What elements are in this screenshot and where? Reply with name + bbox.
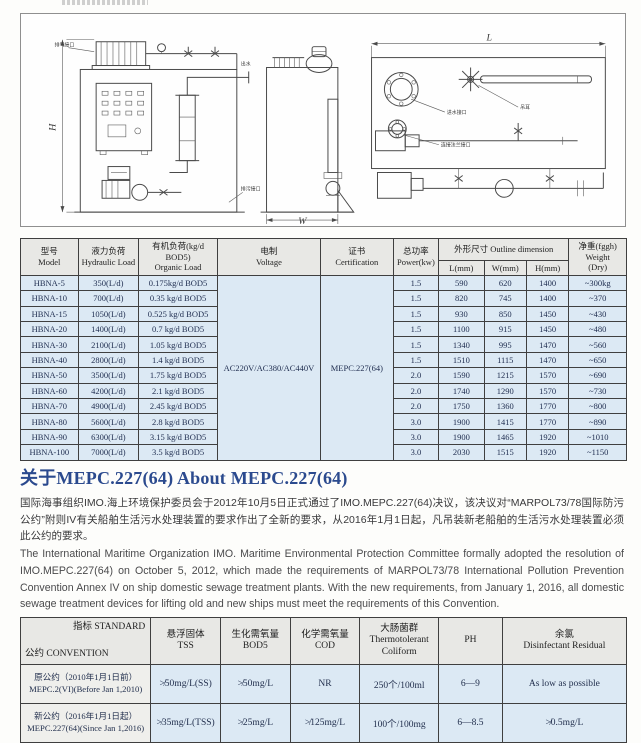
cell-residual: ≯0.5mg/L — [502, 704, 626, 743]
cell-w: 1465 — [484, 429, 526, 444]
cell-weight: ~430 — [569, 306, 627, 321]
lifting-lug-label: 吊耳 — [520, 105, 530, 111]
col-header-w: W(mm) — [484, 260, 526, 275]
col-header-h: H(mm) — [526, 260, 568, 275]
cell-l: 1510 — [439, 352, 484, 367]
cell-organic: 2.45 kg/d BOD5 — [139, 399, 218, 414]
cell-h: 1450 — [526, 322, 568, 337]
cell-power: 2.0 — [393, 383, 438, 398]
cell-weight: ~560 — [569, 337, 627, 352]
cell-l: 1900 — [439, 429, 484, 444]
cell-model: HBNA-60 — [21, 383, 79, 398]
cell-model: HBNA-90 — [21, 429, 79, 444]
cell-h: 1400 — [526, 291, 568, 306]
col-header-power: 总功率Power(kw) — [393, 239, 438, 276]
col-header-weight: 净重(fggh)Weight(Dry) — [569, 239, 627, 276]
col-header-organic: 有机负荷(kg/d BOD5)Organic Load — [139, 239, 218, 276]
cell-l: 1590 — [439, 368, 484, 383]
cell-hydraulic: 4900(L/d) — [78, 399, 139, 414]
cell-ph: 6—9 — [439, 665, 503, 704]
cell-model: HBNA-15 — [21, 306, 79, 321]
table-row: 原公约（2010年1月1日前）MEPC.2(VI)(Before Jan 1,2… — [21, 665, 627, 704]
cell-h: 1570 — [526, 368, 568, 383]
cell-organic: 1.4 kg/d BOD5 — [139, 352, 218, 367]
cell-hydraulic: 2800(L/d) — [78, 352, 139, 367]
inlet-label: 进水接口 — [447, 109, 467, 116]
standards-table: 指标 STANDARD 公约 CONVENTION 悬浮固体TSS 生化需氧量B… — [20, 617, 627, 743]
cell-power: 2.0 — [393, 368, 438, 383]
cell-power: 1.5 — [393, 337, 438, 352]
cell-coliform: 100个/100mg — [360, 704, 439, 743]
row-label-old-convention: 原公约（2010年1月1日前）MEPC.2(VI)(Before Jan 1,2… — [21, 665, 151, 704]
cell-hydraulic: 2100(L/d) — [78, 337, 139, 352]
col-header-cod: 化学需氧量COD — [290, 618, 360, 665]
cell-hydraulic: 5600(L/d) — [78, 414, 139, 429]
cell-w: 1515 — [484, 445, 526, 460]
cell-certification: MEPC.227(64) — [320, 275, 393, 460]
cell-tss: ≯50mg/L(SS) — [151, 665, 221, 704]
cell-l: 1750 — [439, 399, 484, 414]
drain-label: 排污接口 — [241, 185, 261, 192]
cell-organic: 2.1 kg/d BOD5 — [139, 383, 218, 398]
cell-w: 995 — [484, 337, 526, 352]
corner-convention-label: 公约 CONVENTION — [25, 649, 109, 660]
vent-label: 排气接口 — [55, 42, 75, 49]
cell-model: HBNA-100 — [21, 445, 79, 460]
flange-label: 连接法兰接口 — [441, 142, 471, 149]
cell-h: 1450 — [526, 306, 568, 321]
top-view: L 进水接口 吊耳 连接法兰接口 — [372, 33, 606, 199]
cell-power: 3.0 — [393, 414, 438, 429]
cell-tss: ≯35mg/L(TSS) — [151, 704, 221, 743]
cell-l: 2030 — [439, 445, 484, 460]
cell-h: 1920 — [526, 445, 568, 460]
cell-w: 1290 — [484, 383, 526, 398]
dim-w: W — [298, 216, 307, 226]
cell-weight: ~300kg — [569, 275, 627, 290]
cell-organic: 0.7 kg/d BOD5 — [139, 322, 218, 337]
cell-l: 1740 — [439, 383, 484, 398]
cell-model: HBNA-70 — [21, 399, 79, 414]
cell-hydraulic: 4200(L/d) — [78, 383, 139, 398]
cell-hydraulic: 6300(L/d) — [78, 429, 139, 444]
cell-hydraulic: 1050(L/d) — [78, 306, 139, 321]
cell-power: 1.5 — [393, 291, 438, 306]
cell-w: 745 — [484, 291, 526, 306]
section-heading: 关于MEPC.227(64) About MEPC.227(64) — [20, 464, 622, 490]
cell-model: HBNA-10 — [21, 291, 79, 306]
cell-l: 1900 — [439, 414, 484, 429]
col-header-voltage: 电制Voltage — [217, 239, 320, 276]
cell-w: 1360 — [484, 399, 526, 414]
cell-model: HBNA-80 — [21, 414, 79, 429]
cell-weight: ~730 — [569, 383, 627, 398]
cell-l: 930 — [439, 306, 484, 321]
cell-h: 1570 — [526, 383, 568, 398]
cell-hydraulic: 1400(L/d) — [78, 322, 139, 337]
cell-weight: ~690 — [569, 368, 627, 383]
cell-organic: 3.5 kg/d BOD5 — [139, 445, 218, 460]
cell-w: 1415 — [484, 414, 526, 429]
cell-weight: ~1150 — [569, 445, 627, 460]
cell-weight: ~1010 — [569, 429, 627, 444]
equipment-drawing: H 排气接口 — [21, 14, 625, 226]
cell-weight: ~890 — [569, 414, 627, 429]
cell-model: HBNA-5 — [21, 275, 79, 290]
cell-organic: 3.15 kg/d BOD5 — [139, 429, 218, 444]
paragraph-english: The International Maritime Organization … — [20, 546, 624, 613]
cell-model: HBNA-20 — [21, 322, 79, 337]
cell-power: 2.0 — [393, 399, 438, 414]
front-view: H 排气接口 — [48, 40, 261, 212]
cell-hydraulic: 3500(L/d) — [78, 368, 139, 383]
side-view: W — [261, 47, 354, 226]
col-header-l: L(mm) — [439, 260, 484, 275]
col-header-model: 型号Model — [21, 239, 79, 276]
cell-ph: 6—8.5 — [439, 704, 503, 743]
cell-model: HBNA-30 — [21, 337, 79, 352]
cell-l: 820 — [439, 291, 484, 306]
table-row: HBNA-5350(L/d)0.175kg/d BOD5AC220V/AC380… — [21, 275, 627, 290]
cell-power: 1.5 — [393, 352, 438, 367]
spec-table: 型号Model 液力负荷Hydraulic Load 有机负荷(kg/d BOD… — [20, 238, 627, 461]
col-header-certification: 证书Certification — [320, 239, 393, 276]
cell-cod: NR — [290, 665, 360, 704]
table-row: 新公约（2016年1月1日起）MEPC.227(64)(Since Jan 1,… — [21, 704, 627, 743]
cell-organic: 2.8 kg/d BOD5 — [139, 414, 218, 429]
cell-hydraulic: 700(L/d) — [78, 291, 139, 306]
cell-cod: ≯125mg/L — [290, 704, 360, 743]
cell-organic: 0.525 kg/d BOD5 — [139, 306, 218, 321]
outlet-label: 出水 — [241, 61, 251, 68]
corner-standard-label: 指标 STANDARD — [73, 622, 145, 633]
cell-power: 3.0 — [393, 445, 438, 460]
col-header-hydraulic: 液力负荷Hydraulic Load — [78, 239, 139, 276]
cell-bod5: ≯25mg/L — [220, 704, 290, 743]
clipped-header-text — [62, 0, 148, 5]
cell-weight: ~800 — [569, 399, 627, 414]
col-header-outline: 外形尺寸 Outline dimension — [439, 239, 569, 261]
cell-weight: ~650 — [569, 352, 627, 367]
cell-organic: 0.175kg/d BOD5 — [139, 275, 218, 290]
cell-hydraulic: 7000(L/d) — [78, 445, 139, 460]
cell-model: HBNA-40 — [21, 352, 79, 367]
cell-h: 1770 — [526, 399, 568, 414]
cell-power: 1.5 — [393, 306, 438, 321]
cell-model: HBNA-50 — [21, 368, 79, 383]
cell-hydraulic: 350(L/d) — [78, 275, 139, 290]
corner-header: 指标 STANDARD 公约 CONVENTION — [21, 618, 151, 665]
cell-organic: 1.75 kg/d BOD5 — [139, 368, 218, 383]
cell-l: 590 — [439, 275, 484, 290]
cell-voltage: AC220V/AC380/AC440V — [217, 275, 320, 460]
cell-h: 1470 — [526, 352, 568, 367]
cell-h: 1400 — [526, 275, 568, 290]
dim-h: H — [48, 123, 59, 132]
cell-l: 1340 — [439, 337, 484, 352]
cell-organic: 1.05 kg/d BOD5 — [139, 337, 218, 352]
cell-bod5: ≯50mg/L — [220, 665, 290, 704]
cell-h: 1470 — [526, 337, 568, 352]
cell-power: 3.0 — [393, 429, 438, 444]
cell-w: 620 — [484, 275, 526, 290]
col-header-bod5: 生化需氧量BOD5 — [220, 618, 290, 665]
cell-h: 1920 — [526, 429, 568, 444]
col-header-tss: 悬浮固体TSS — [151, 618, 221, 665]
paragraph-chinese: 国际海事组织IMO.海上环境保护委员会于2012年10月5日正式通过了IMO.M… — [20, 495, 624, 545]
cell-w: 915 — [484, 322, 526, 337]
row-label-new-convention: 新公约（2016年1月1日起）MEPC.227(64)(Since Jan 1,… — [21, 704, 151, 743]
cell-w: 1215 — [484, 368, 526, 383]
cell-coliform: 250个/100ml — [360, 665, 439, 704]
cell-power: 1.5 — [393, 275, 438, 290]
dim-l: L — [485, 33, 492, 44]
col-header-ph: PH — [439, 618, 503, 665]
cell-organic: 0.35 kg/d BOD5 — [139, 291, 218, 306]
col-header-coliform: 大肠菌群Thermotolerant Coliform — [360, 618, 439, 665]
cell-power: 1.5 — [393, 322, 438, 337]
equipment-drawing-panel: H 排气接口 — [20, 13, 626, 227]
cell-weight: ~480 — [569, 322, 627, 337]
col-header-residual: 余氯Disinfectant Residual — [502, 618, 626, 665]
cell-w: 1115 — [484, 352, 526, 367]
cell-residual: As low as possible — [502, 665, 626, 704]
cell-l: 1100 — [439, 322, 484, 337]
cell-h: 1770 — [526, 414, 568, 429]
cell-w: 850 — [484, 306, 526, 321]
cell-weight: ~370 — [569, 291, 627, 306]
